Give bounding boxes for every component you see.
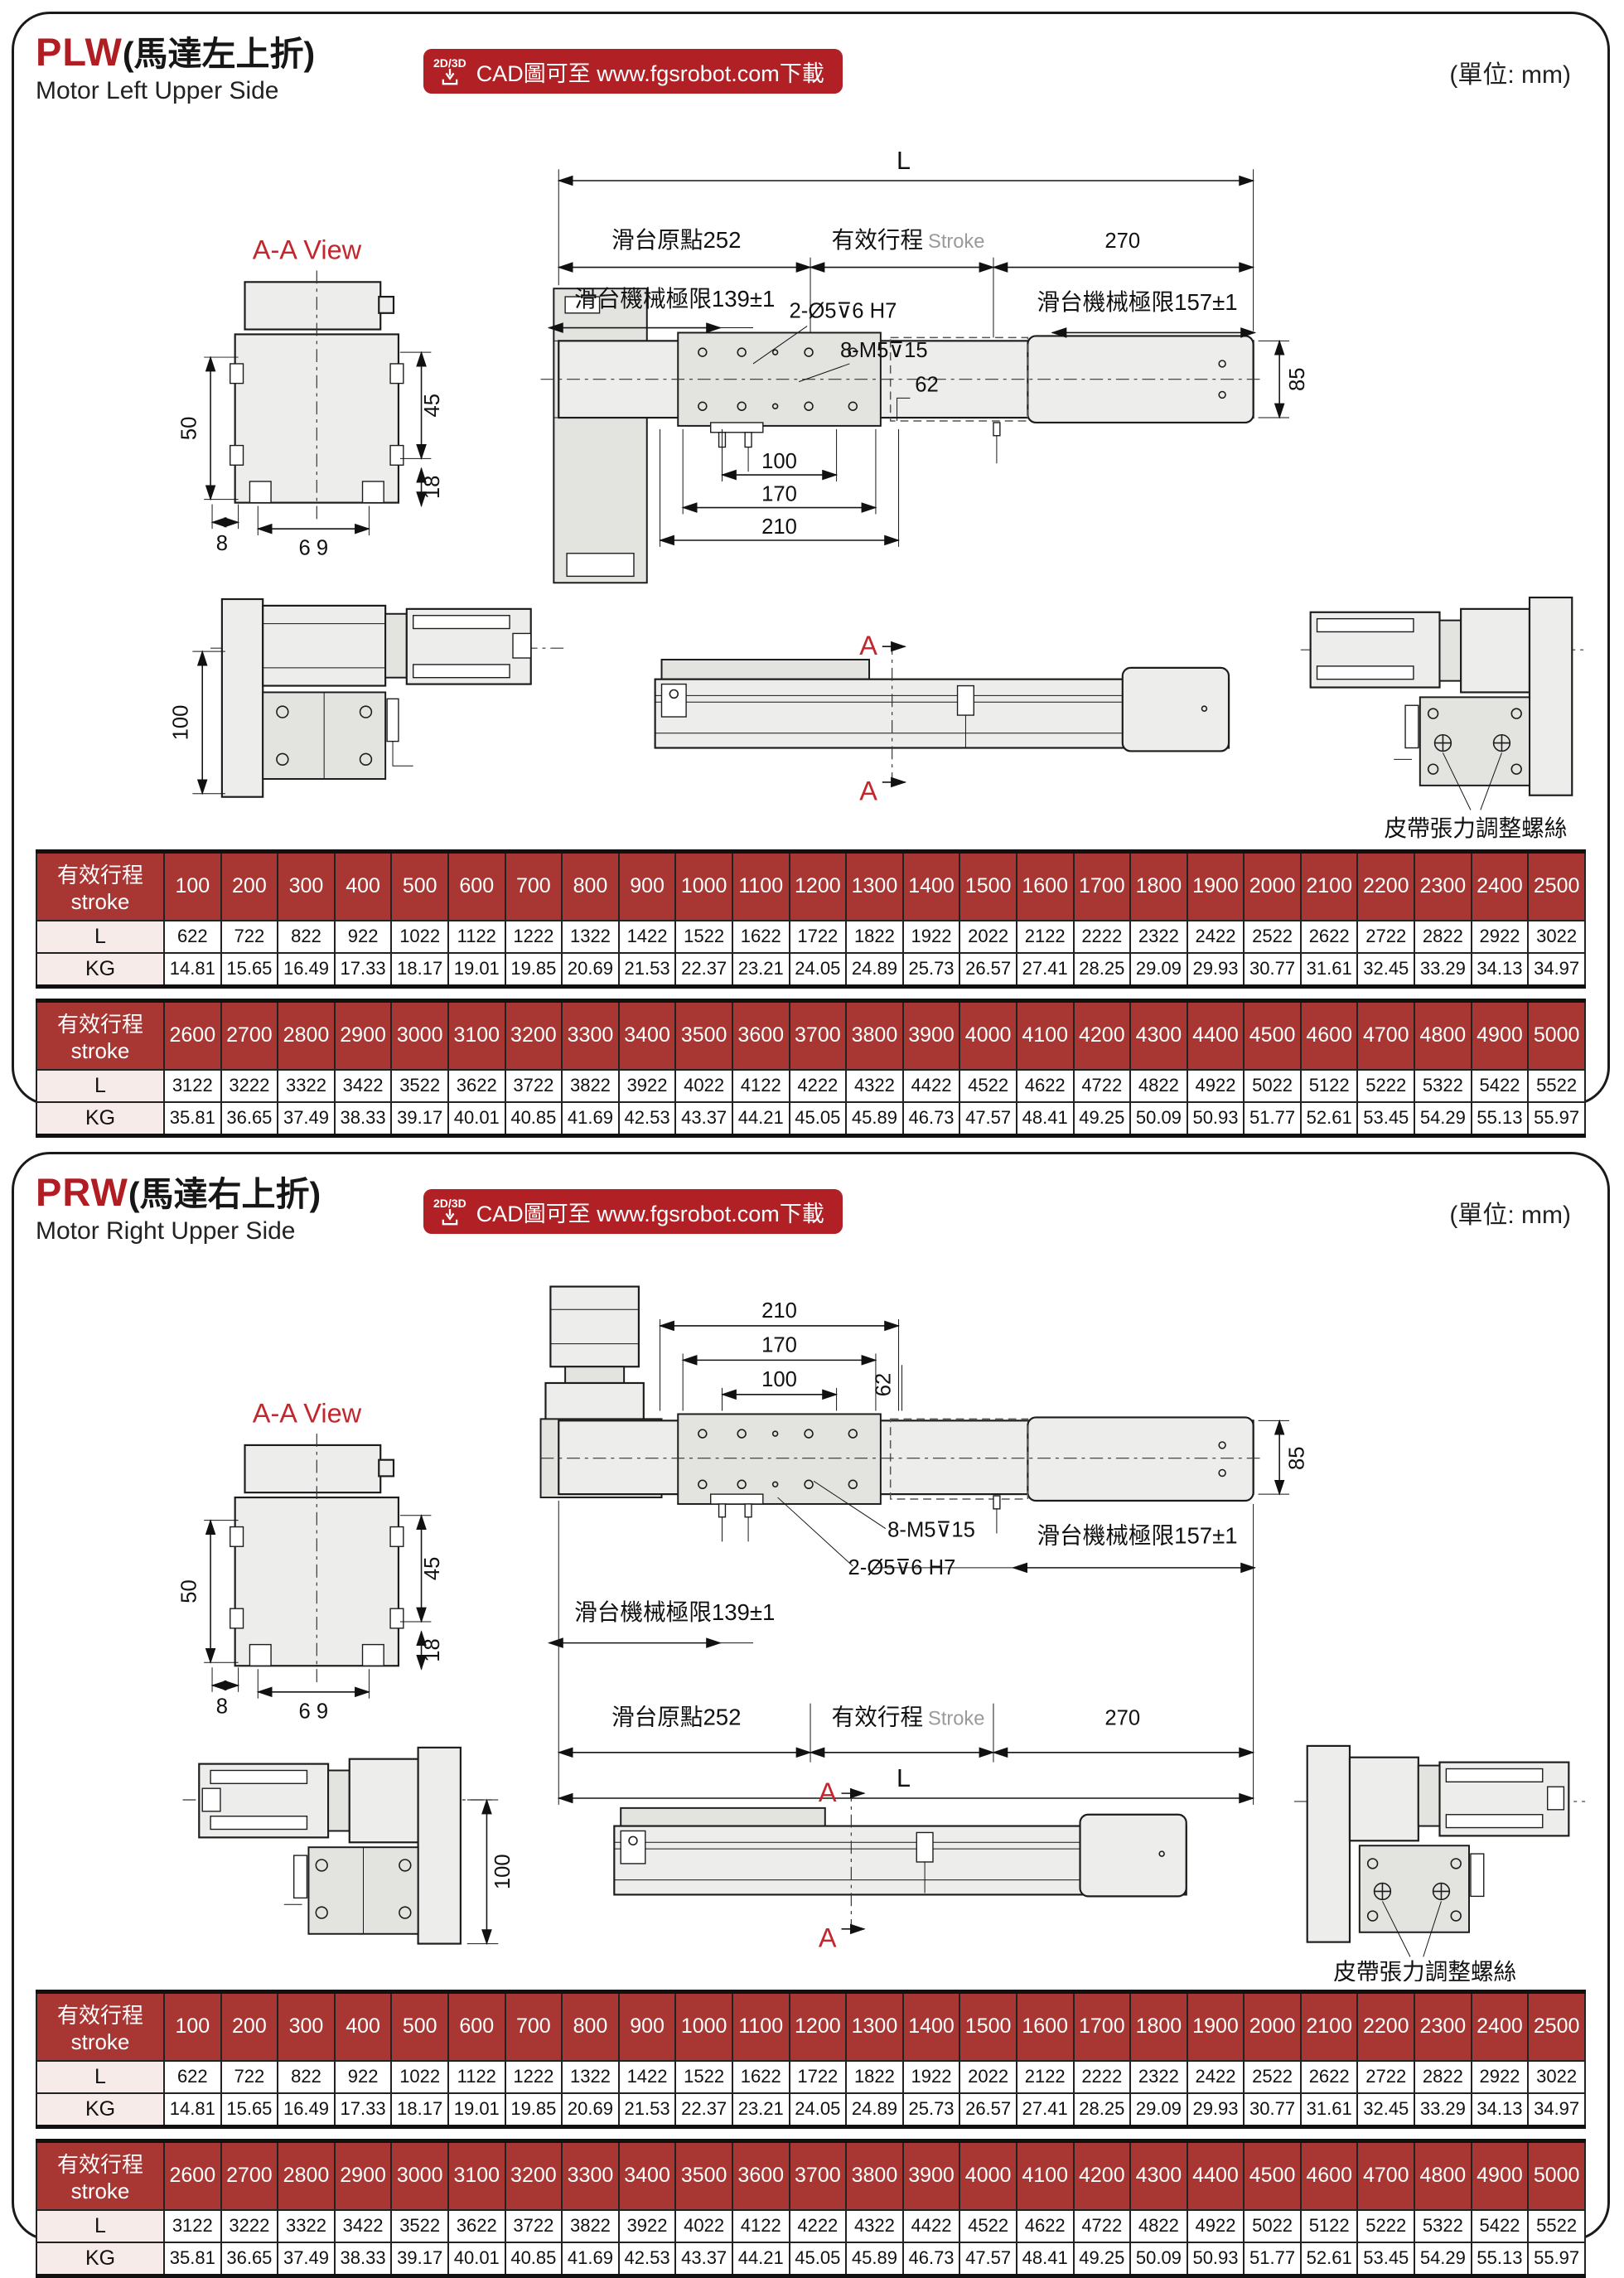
weight-value-cell: 48.41 <box>1017 2242 1074 2276</box>
stroke-table: 有效行程stroke100200300400500600700800900100… <box>36 849 1586 989</box>
length-value-cell: 3222 <box>221 1070 278 1102</box>
weight-value-cell: 28.25 <box>1074 2093 1131 2127</box>
stroke-header-cell: 4500 <box>1244 2140 1301 2210</box>
stroke-header-cell: 3800 <box>846 2140 903 2210</box>
weight-value-cell: 26.57 <box>959 2093 1017 2127</box>
weight-value-cell: 55.13 <box>1472 2242 1529 2276</box>
length-value-cell: 5222 <box>1357 2210 1414 2242</box>
weight-value-cell: 45.89 <box>846 1102 903 1136</box>
weight-value-cell: 52.61 <box>1301 2242 1358 2276</box>
length-value-cell: 4122 <box>732 1070 790 1102</box>
weight-value-cell: 20.69 <box>562 2093 619 2127</box>
stroke-zh-label: 有效行程 <box>832 227 923 253</box>
weight-value-cell: 16.49 <box>278 2093 335 2127</box>
weight-value-cell: 32.45 <box>1357 953 1414 987</box>
stroke-header-cell: 4100 <box>1017 1000 1074 1070</box>
dim-L: L <box>897 1764 911 1792</box>
weight-value-cell: 19.01 <box>448 953 505 987</box>
stroke-header-cell: 300 <box>278 851 335 921</box>
dim-6-9: 6 9 <box>299 537 329 560</box>
dim-210: 210 <box>761 515 797 539</box>
stroke-header-cell: 1200 <box>790 1991 847 2061</box>
stroke-header-cell: 1100 <box>732 851 790 921</box>
stroke-header-cell: 2900 <box>335 1000 392 1070</box>
prw-code: PRW <box>36 1170 128 1214</box>
stroke-header-cell: 3300 <box>562 2140 619 2210</box>
dim-100-side: 100 <box>491 1854 515 1889</box>
plw-tables: 有效行程stroke100200300400500600700800900100… <box>36 849 1586 1138</box>
length-value-cell: 4622 <box>1017 2210 1074 2242</box>
weight-value-cell: 37.49 <box>278 1102 335 1136</box>
length-value-cell: 5022 <box>1244 2210 1301 2242</box>
stroke-header-cell: 2100 <box>1301 1991 1358 2061</box>
stroke-header-cell: 200 <box>221 851 278 921</box>
length-value-cell: 3622 <box>448 1070 505 1102</box>
dim-8: 8 <box>216 1695 228 1718</box>
length-value-cell: 4322 <box>846 2210 903 2242</box>
stroke-header-cell: 3700 <box>790 1000 847 1070</box>
weight-value-cell: 31.61 <box>1301 953 1358 987</box>
stroke-header-cell: 4200 <box>1074 1000 1131 1070</box>
stroke-table: 有效行程stroke260027002800290030003100320033… <box>36 999 1586 1138</box>
stroke-header-cell: 2700 <box>221 2140 278 2210</box>
length-value-cell: 4022 <box>675 1070 732 1102</box>
section-a-bottom: A <box>859 776 877 806</box>
length-value-cell: 1322 <box>562 2061 619 2093</box>
weight-value-cell: 36.65 <box>221 1102 278 1136</box>
length-value-cell: 2322 <box>1130 921 1187 953</box>
weight-value-cell: 29.93 <box>1187 2093 1245 2127</box>
stroke-header-cell: 700 <box>505 1991 563 2061</box>
section-a-top: A <box>819 1777 837 1807</box>
origin-252-label: 滑台原點252 <box>611 227 742 253</box>
stroke-header-cell: 1900 <box>1187 1991 1245 2061</box>
units-label: (單位: mm) <box>1449 1194 1571 1231</box>
weight-value-cell: 33.29 <box>1414 2093 1472 2127</box>
length-value-cell: 1322 <box>562 921 619 953</box>
stroke-header-cell: 3200 <box>505 1000 563 1070</box>
length-value-cell: 1022 <box>391 2061 448 2093</box>
weight-value-cell: 47.57 <box>959 1102 1017 1136</box>
row-label-L: L <box>36 1070 164 1102</box>
stroke-header-cell: 4600 <box>1301 1000 1358 1070</box>
length-value-cell: 4722 <box>1074 2210 1131 2242</box>
length-value-cell: 1922 <box>903 921 960 953</box>
row-label-KG: KG <box>36 953 164 987</box>
stroke-header-cell: 3800 <box>846 1000 903 1070</box>
dim-270: 270 <box>1104 230 1140 253</box>
stroke-header-cell: 2200 <box>1357 1991 1414 2061</box>
stroke-header-cell: 2500 <box>1528 851 1585 921</box>
length-value-cell: 1222 <box>505 2061 563 2093</box>
length-value-cell: 4222 <box>790 1070 847 1102</box>
stroke-header-cell: 1400 <box>903 1991 960 2061</box>
weight-value-cell: 30.77 <box>1244 2093 1301 2127</box>
weight-value-cell: 48.41 <box>1017 1102 1074 1136</box>
length-value-cell: 622 <box>164 2061 221 2093</box>
stroke-table: 有效行程stroke260027002800290030003100320033… <box>36 2139 1586 2278</box>
weight-value-cell: 40.01 <box>448 1102 505 1136</box>
stroke-header-cell: 3600 <box>732 2140 790 2210</box>
weight-value-cell: 45.05 <box>790 1102 847 1136</box>
prw-side-view-left: 100 <box>183 1748 515 1944</box>
stroke-header-label: 有效行程stroke <box>36 2140 164 2210</box>
weight-value-cell: 25.73 <box>903 2093 960 2127</box>
weight-value-cell: 20.69 <box>562 953 619 987</box>
length-value-cell: 4422 <box>903 1070 960 1102</box>
cad-download-badge[interactable]: 2D/3D CAD圖可至 www.fgsrobot.com下載 <box>423 49 843 94</box>
weight-value-cell: 39.17 <box>391 1102 448 1136</box>
stroke-header-cell: 2200 <box>1357 851 1414 921</box>
weight-value-cell: 18.17 <box>391 953 448 987</box>
weight-value-cell: 43.37 <box>675 2242 732 2276</box>
stroke-header-cell: 4700 <box>1357 1000 1414 1070</box>
prw-panel: PRW(馬達右上折) Motor Right Upper Side 2D/3D … <box>12 1152 1610 2241</box>
aa-view-label: A-A View <box>253 1398 362 1428</box>
stroke-header-cell: 1000 <box>675 1991 732 2061</box>
length-value-cell: 5422 <box>1472 1070 1529 1102</box>
length-value-cell: 2422 <box>1187 921 1245 953</box>
plw-code: PLW <box>36 30 123 74</box>
length-value-cell: 1922 <box>903 2061 960 2093</box>
dim-100: 100 <box>761 1368 797 1391</box>
stroke-header-cell: 3000 <box>391 1000 448 1070</box>
weight-value-cell: 31.61 <box>1301 2093 1358 2127</box>
length-value-cell: 4022 <box>675 2210 732 2242</box>
stroke-header-cell: 2400 <box>1472 851 1529 921</box>
length-value-cell: 2222 <box>1074 2061 1131 2093</box>
weight-value-cell: 40.85 <box>505 1102 563 1136</box>
weight-value-cell: 37.49 <box>278 2242 335 2276</box>
stroke-header-cell: 3500 <box>675 1000 732 1070</box>
stroke-header-cell: 1700 <box>1074 851 1131 921</box>
stroke-header-cell: 900 <box>619 1991 676 2061</box>
stroke-header-cell: 3000 <box>391 2140 448 2210</box>
stroke-header-cell: 4400 <box>1187 1000 1245 1070</box>
weight-value-cell: 46.73 <box>903 1102 960 1136</box>
weight-value-cell: 15.65 <box>221 2093 278 2127</box>
units-label: (單位: mm) <box>1449 54 1571 90</box>
badge-2d3d-tag: 2D/3D <box>433 57 466 69</box>
belt-tension-label: 皮帶張力調整螺絲 <box>1384 815 1567 841</box>
stroke-en-label: Stroke <box>928 231 984 253</box>
weight-value-cell: 17.33 <box>335 2093 392 2127</box>
cad-download-badge[interactable]: 2D/3D CAD圖可至 www.fgsrobot.com下載 <box>423 1189 843 1234</box>
length-value-cell: 1422 <box>619 2061 676 2093</box>
weight-value-cell: 51.77 <box>1244 2242 1301 2276</box>
length-value-cell: 2922 <box>1472 2061 1529 2093</box>
stroke-header-cell: 4000 <box>959 1000 1017 1070</box>
plw-panel: PLW(馬達左上折) Motor Left Upper Side 2D/3D C… <box>12 12 1610 1105</box>
stroke-header-cell: 200 <box>221 1991 278 2061</box>
stroke-header-cell: 2600 <box>164 2140 221 2210</box>
weight-value-cell: 22.37 <box>675 2093 732 2127</box>
stroke-header-cell: 3300 <box>562 1000 619 1070</box>
length-value-cell: 5322 <box>1414 2210 1472 2242</box>
pin-holes-callout: 2-Ø5⊽6 H7 <box>790 300 897 323</box>
dim-50: 50 <box>177 417 201 441</box>
weight-value-cell: 50.09 <box>1130 1102 1187 1136</box>
download-icon: 2D/3D <box>433 57 466 85</box>
stroke-header-cell: 1600 <box>1017 1991 1074 2061</box>
stroke-header-cell: 1800 <box>1130 851 1187 921</box>
prw-drawing: A-A View 50 45 18 <box>36 1262 1586 1981</box>
stroke-header-cell: 5000 <box>1528 2140 1585 2210</box>
stroke-header-cell: 700 <box>505 851 563 921</box>
weight-value-cell: 29.09 <box>1130 953 1187 987</box>
weight-value-cell: 49.25 <box>1074 2242 1131 2276</box>
stroke-header-cell: 1500 <box>959 851 1017 921</box>
weight-value-cell: 44.21 <box>732 1102 790 1136</box>
weight-value-cell: 18.17 <box>391 2093 448 2127</box>
weight-value-cell: 50.09 <box>1130 2242 1187 2276</box>
stroke-header-cell: 1900 <box>1187 851 1245 921</box>
plw-aa-view: A-A View 50 45 18 <box>177 235 444 560</box>
weight-value-cell: 24.89 <box>846 953 903 987</box>
weight-value-cell: 39.17 <box>391 2242 448 2276</box>
stroke-header-cell: 400 <box>335 851 392 921</box>
weight-value-cell: 17.33 <box>335 953 392 987</box>
stroke-header-cell: 600 <box>448 1991 505 2061</box>
weight-value-cell: 24.05 <box>790 953 847 987</box>
row-label-L: L <box>36 921 164 953</box>
length-value-cell: 3522 <box>391 2210 448 2242</box>
length-value-cell: 4122 <box>732 2210 790 2242</box>
length-value-cell: 3022 <box>1528 921 1585 953</box>
prw-side-view-right: 皮帶張力調整螺絲 <box>1294 1746 1585 1981</box>
stroke-header-cell: 3200 <box>505 2140 563 2210</box>
dim-85: 85 <box>1286 367 1309 391</box>
length-value-cell: 2922 <box>1472 921 1529 953</box>
section-a-top: A <box>859 631 877 660</box>
weight-value-cell: 16.49 <box>278 953 335 987</box>
length-value-cell: 1622 <box>732 921 790 953</box>
limit-157-label: 滑台機械極限157±1 <box>1037 289 1237 315</box>
plw-side-view-right: 皮帶張力調整螺絲 <box>1301 597 1585 841</box>
weight-value-cell: 14.81 <box>164 2093 221 2127</box>
length-value-cell: 4522 <box>959 1070 1017 1102</box>
weight-value-cell: 41.69 <box>562 2242 619 2276</box>
weight-value-cell: 45.05 <box>790 2242 847 2276</box>
dim-270: 270 <box>1104 1706 1140 1729</box>
limit-139-label: 滑台機械極限139±1 <box>574 286 775 312</box>
stroke-header-cell: 500 <box>391 1991 448 2061</box>
stroke-header-cell: 300 <box>278 1991 335 2061</box>
weight-value-cell: 44.21 <box>732 2242 790 2276</box>
length-value-cell: 4722 <box>1074 1070 1131 1102</box>
dim-8: 8 <box>216 532 228 555</box>
length-value-cell: 1522 <box>675 2061 732 2093</box>
length-value-cell: 5522 <box>1528 2210 1585 2242</box>
weight-value-cell: 21.53 <box>619 953 676 987</box>
stroke-header-cell: 4400 <box>1187 2140 1245 2210</box>
stroke-header-cell: 800 <box>562 1991 619 2061</box>
stroke-header-cell: 800 <box>562 851 619 921</box>
dim-85: 85 <box>1286 1446 1309 1470</box>
tap-holes-callout: 8-M5⊽15 <box>840 339 928 362</box>
prw-title-zh: (馬達右上折) <box>128 1175 321 1213</box>
stroke-header-cell: 4700 <box>1357 2140 1414 2210</box>
length-value-cell: 3122 <box>164 1070 221 1102</box>
weight-value-cell: 40.01 <box>448 2242 505 2276</box>
stroke-header-cell: 4800 <box>1414 2140 1472 2210</box>
stroke-header-cell: 2000 <box>1244 851 1301 921</box>
badge-2d3d-tag: 2D/3D <box>433 1197 466 1209</box>
length-value-cell: 3422 <box>335 1070 392 1102</box>
stroke-header-cell: 3600 <box>732 1000 790 1070</box>
weight-value-cell: 54.29 <box>1414 2242 1472 2276</box>
length-value-cell: 5122 <box>1301 1070 1358 1102</box>
stroke-header-cell: 400 <box>335 1991 392 2061</box>
weight-value-cell: 50.93 <box>1187 2242 1245 2276</box>
stroke-header-cell: 1400 <box>903 851 960 921</box>
length-value-cell: 2622 <box>1301 2061 1358 2093</box>
stroke-header-cell: 1500 <box>959 1991 1017 2061</box>
weight-value-cell: 19.85 <box>505 2093 563 2127</box>
length-value-cell: 2022 <box>959 921 1017 953</box>
plw-drawing: A-A View 50 45 18 <box>36 122 1586 841</box>
length-value-cell: 3722 <box>505 1070 563 1102</box>
dim-100-side: 100 <box>169 705 192 741</box>
stroke-header-cell: 2000 <box>1244 1991 1301 2061</box>
stroke-header-cell: 600 <box>448 851 505 921</box>
stroke-header-cell: 4500 <box>1244 1000 1301 1070</box>
weight-value-cell: 27.41 <box>1017 953 1074 987</box>
row-label-KG: KG <box>36 2242 164 2276</box>
stroke-header-cell: 900 <box>619 851 676 921</box>
weight-value-cell: 47.57 <box>959 2242 1017 2276</box>
stroke-header-cell: 3100 <box>448 1000 505 1070</box>
stroke-table: 有效行程stroke100200300400500600700800900100… <box>36 1990 1586 2129</box>
length-value-cell: 4822 <box>1130 1070 1187 1102</box>
dim-170: 170 <box>761 1333 797 1357</box>
aa-view-label: A-A View <box>253 235 362 265</box>
weight-value-cell: 41.69 <box>562 1102 619 1136</box>
length-value-cell: 1522 <box>675 921 732 953</box>
length-value-cell: 4922 <box>1187 2210 1245 2242</box>
stroke-header-cell: 1200 <box>790 851 847 921</box>
length-value-cell: 922 <box>335 921 392 953</box>
length-value-cell: 2822 <box>1414 921 1472 953</box>
stroke-header-cell: 4000 <box>959 2140 1017 2210</box>
stroke-header-cell: 3700 <box>790 2140 847 2210</box>
length-value-cell: 3322 <box>278 2210 335 2242</box>
weight-value-cell: 26.57 <box>959 953 1017 987</box>
length-value-cell: 3022 <box>1528 2061 1585 2093</box>
length-value-cell: 5022 <box>1244 1070 1301 1102</box>
stroke-header-cell: 2600 <box>164 1000 221 1070</box>
stroke-header-cell: 1300 <box>846 851 903 921</box>
length-value-cell: 1822 <box>846 2061 903 2093</box>
length-value-cell: 3922 <box>619 1070 676 1102</box>
plw-header: PLW(馬達左上折) Motor Left Upper Side 2D/3D C… <box>36 26 1586 118</box>
length-value-cell: 1722 <box>790 921 847 953</box>
length-value-cell: 1722 <box>790 2061 847 2093</box>
plw-side-view-left: 100 <box>169 599 565 797</box>
length-value-cell: 2022 <box>959 2061 1017 2093</box>
length-value-cell: 4622 <box>1017 1070 1074 1102</box>
length-value-cell: 4922 <box>1187 1070 1245 1102</box>
stroke-header-cell: 3400 <box>619 2140 676 2210</box>
stroke-header-cell: 5000 <box>1528 1000 1585 1070</box>
dim-50: 50 <box>177 1579 201 1603</box>
length-value-cell: 622 <box>164 921 221 953</box>
weight-value-cell: 29.93 <box>1187 953 1245 987</box>
weight-value-cell: 55.97 <box>1528 2242 1585 2276</box>
stroke-header-label: 有效行程stroke <box>36 1000 164 1070</box>
weight-value-cell: 38.33 <box>335 1102 392 1136</box>
length-value-cell: 1122 <box>448 921 505 953</box>
length-value-cell: 2322 <box>1130 2061 1187 2093</box>
length-value-cell: 922 <box>335 2061 392 2093</box>
weight-value-cell: 24.89 <box>846 2093 903 2127</box>
weight-value-cell: 34.13 <box>1472 953 1529 987</box>
length-value-cell: 3322 <box>278 1070 335 1102</box>
weight-value-cell: 51.77 <box>1244 1102 1301 1136</box>
stroke-en-label: Stroke <box>928 1708 984 1729</box>
length-value-cell: 2522 <box>1244 921 1301 953</box>
section-a-bottom: A <box>819 1923 837 1953</box>
length-value-cell: 3822 <box>562 1070 619 1102</box>
stroke-header-cell: 4900 <box>1472 1000 1529 1070</box>
stroke-header-cell: 2100 <box>1301 851 1358 921</box>
length-value-cell: 2122 <box>1017 921 1074 953</box>
prw-header: PRW(馬達右上折) Motor Right Upper Side 2D/3D … <box>36 1166 1586 1259</box>
length-value-cell: 3522 <box>391 1070 448 1102</box>
stroke-header-cell: 2300 <box>1414 1991 1472 2061</box>
cad-badge-text: CAD圖可至 www.fgsrobot.com下載 <box>476 1196 824 1228</box>
stroke-header-cell: 2900 <box>335 2140 392 2210</box>
weight-value-cell: 32.45 <box>1357 2093 1414 2127</box>
stroke-header-cell: 2800 <box>278 1000 335 1070</box>
stroke-header-cell: 4200 <box>1074 2140 1131 2210</box>
row-label-KG: KG <box>36 1102 164 1136</box>
stroke-header-cell: 2800 <box>278 2140 335 2210</box>
length-value-cell: 1122 <box>448 2061 505 2093</box>
length-value-cell: 722 <box>221 921 278 953</box>
weight-value-cell: 34.97 <box>1528 2093 1585 2127</box>
weight-value-cell: 15.65 <box>221 953 278 987</box>
stroke-header-cell: 500 <box>391 851 448 921</box>
stroke-header-cell: 4900 <box>1472 2140 1529 2210</box>
length-value-cell: 2722 <box>1357 921 1414 953</box>
belt-tension-label: 皮帶張力調整螺絲 <box>1333 1959 1516 1981</box>
catalog-page: PLW(馬達左上折) Motor Left Upper Side 2D/3D C… <box>0 0 1624 2262</box>
length-value-cell: 1422 <box>619 921 676 953</box>
length-value-cell: 5522 <box>1528 1070 1585 1102</box>
weight-value-cell: 46.73 <box>903 2242 960 2276</box>
weight-value-cell: 34.97 <box>1528 953 1585 987</box>
row-label-L: L <box>36 2210 164 2242</box>
row-label-L: L <box>36 2061 164 2093</box>
length-value-cell: 1822 <box>846 921 903 953</box>
plw-top-view: 85 L 滑台原點252 有效行程 Stroke 270 滑台機械極限139±1… <box>541 147 1309 583</box>
plw-side-view-middle: A A <box>655 631 1229 806</box>
weight-value-cell: 38.33 <box>335 2242 392 2276</box>
dim-100: 100 <box>761 450 797 473</box>
length-value-cell: 4422 <box>903 2210 960 2242</box>
weight-value-cell: 33.29 <box>1414 953 1472 987</box>
prw-side-view-middle: A A <box>614 1777 1186 1953</box>
weight-value-cell: 34.13 <box>1472 2093 1529 2127</box>
weight-value-cell: 50.93 <box>1187 1102 1245 1136</box>
limit-157-label: 滑台機械極限157±1 <box>1037 1522 1237 1548</box>
cad-badge-text: CAD圖可至 www.fgsrobot.com下載 <box>476 56 824 88</box>
stroke-header-cell: 1100 <box>732 1991 790 2061</box>
weight-value-cell: 22.37 <box>675 953 732 987</box>
stroke-header-label: 有效行程stroke <box>36 1991 164 2061</box>
weight-value-cell: 30.77 <box>1244 953 1301 987</box>
